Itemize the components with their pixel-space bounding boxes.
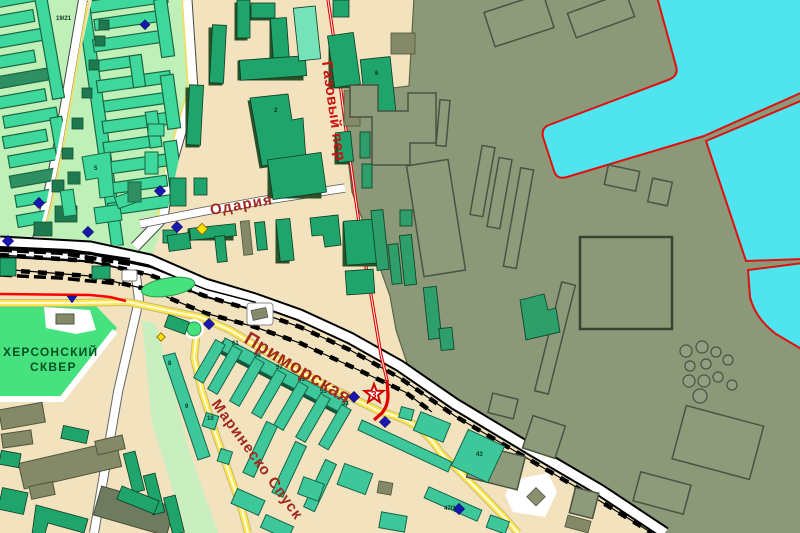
svg-text:10: 10: [207, 416, 214, 422]
svg-text:ХЕРСОНСКИЙ: ХЕРСОНСКИЙ: [3, 344, 98, 359]
svg-text:61: 61: [232, 341, 239, 347]
svg-text:3: 3: [371, 390, 377, 401]
svg-text:47/1: 47/1: [444, 506, 456, 512]
svg-text:43: 43: [476, 452, 483, 458]
svg-text:СКВЕР: СКВЕР: [30, 360, 77, 374]
svg-text:19/21: 19/21: [56, 16, 72, 22]
